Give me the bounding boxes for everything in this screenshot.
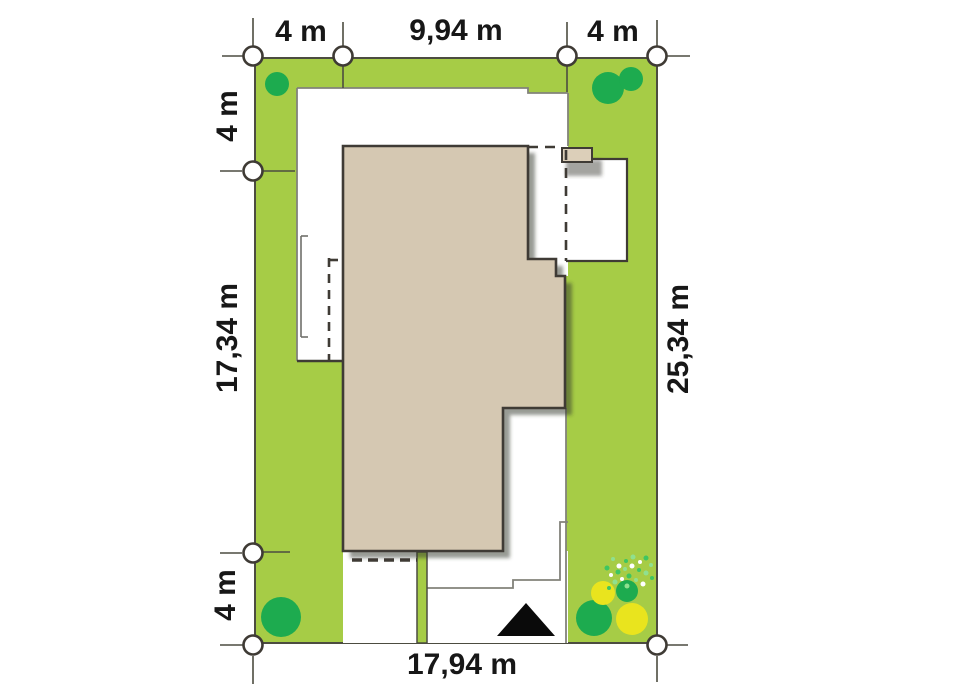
tree-bottom-right — [576, 600, 612, 636]
marker-bottom-right-corner — [648, 636, 667, 655]
site-plan-drawing — [0, 0, 960, 690]
dim-top-left-setback: 4 m — [275, 17, 327, 47]
dim-left-top-setback: 4 m — [213, 90, 243, 142]
site-plan-canvas: 4 m 9,94 m 4 m 4 m 17,34 m 4 m 25,34 m 1… — [0, 0, 960, 690]
terrace-left — [297, 88, 343, 361]
tree-bottom-left — [261, 597, 301, 637]
lawn-strip — [417, 552, 427, 643]
tree-top-right-large — [592, 72, 624, 104]
tree-bottom-right-small — [616, 580, 638, 602]
dim-left-bottom-setback: 4 m — [211, 569, 241, 621]
dim-top-house-width: 9,94 m — [409, 16, 502, 46]
tree-top-left — [265, 72, 289, 96]
marker-top-right-corner — [648, 47, 667, 66]
dim-right-plot-depth: 25,34 m — [664, 284, 694, 394]
dim-left-house-depth: 17,34 m — [213, 283, 243, 393]
shrub-yellow-small — [591, 581, 615, 605]
garage-court — [503, 408, 566, 551]
marker-left-house-top — [244, 162, 263, 181]
tree-top-right-small — [619, 67, 643, 91]
marker-bottom-left-corner — [244, 636, 263, 655]
marker-top-left-corner — [244, 47, 263, 66]
dim-bottom-plot-width: 17,94 m — [407, 650, 517, 680]
shrub-yellow-large — [616, 603, 648, 635]
marker-top-house-right — [558, 47, 577, 66]
marker-left-house-bottom — [244, 544, 263, 563]
dim-top-right-setback: 4 m — [587, 17, 639, 47]
marker-top-house-left — [334, 47, 353, 66]
